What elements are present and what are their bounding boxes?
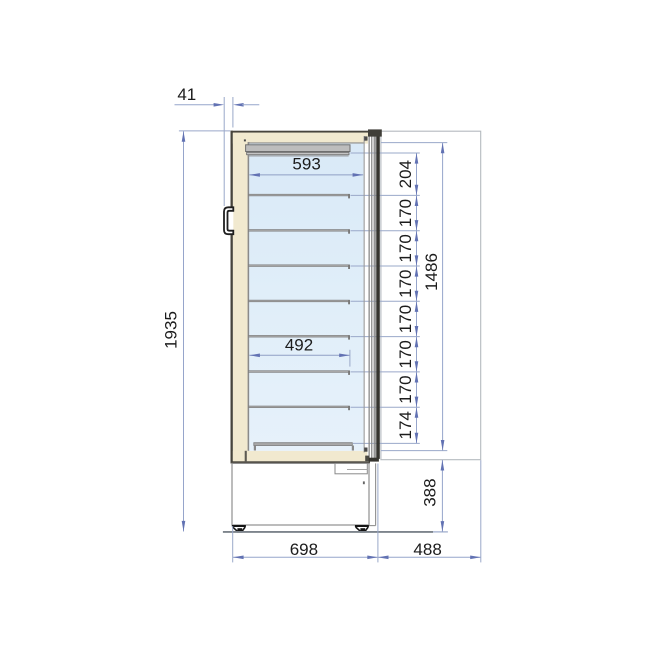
svg-text:1935: 1935 xyxy=(162,311,181,349)
svg-text:170: 170 xyxy=(396,199,415,227)
svg-text:1486: 1486 xyxy=(422,253,441,291)
svg-text:204: 204 xyxy=(396,160,415,188)
svg-text:698: 698 xyxy=(290,540,318,559)
svg-text:593: 593 xyxy=(292,155,320,174)
svg-text:492: 492 xyxy=(285,336,313,355)
svg-text:170: 170 xyxy=(396,270,415,298)
svg-text:41: 41 xyxy=(177,85,196,104)
svg-text:170: 170 xyxy=(396,305,415,333)
svg-text:170: 170 xyxy=(396,375,415,403)
svg-text:170: 170 xyxy=(396,234,415,262)
svg-text:388: 388 xyxy=(420,478,439,506)
svg-text:488: 488 xyxy=(413,540,441,559)
svg-text:170: 170 xyxy=(396,340,415,368)
svg-text:174: 174 xyxy=(396,411,415,439)
